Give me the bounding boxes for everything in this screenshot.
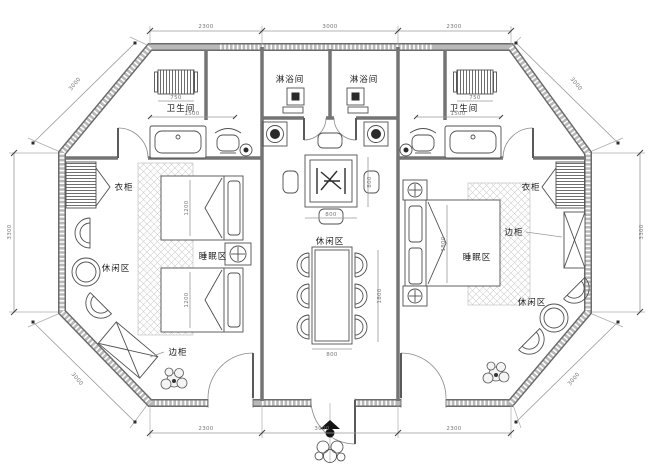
bed-left-b	[161, 268, 243, 332]
side-cabinet-right	[564, 212, 585, 268]
bathroom-left-door-arc	[118, 128, 148, 158]
dim-bed-left-a: 1200	[184, 200, 190, 215]
nightstand-left	[225, 243, 251, 265]
dim-diag-top-right: 3000	[569, 77, 583, 93]
cabinet-left-label: 边柜	[168, 347, 187, 358]
dim-towel-left: 750	[170, 95, 182, 101]
leisure-left-label: 休闲区	[102, 263, 131, 274]
center-lounge: 休闲区	[283, 133, 379, 444]
wardrobe-right-label: 衣柜	[521, 182, 540, 193]
dim-bottom-left: 2300	[198, 426, 213, 432]
nightstand-right-top	[403, 180, 427, 200]
dim-bottom-right: 2300	[446, 426, 461, 432]
desk-chair-right	[410, 129, 436, 154]
stool-west	[283, 171, 298, 193]
leisure-center-label: 休闲区	[316, 236, 345, 247]
wardrobe-right	[542, 162, 585, 208]
dimensions: 2300 3000 2300 2300 3000 2300 3300 3300 …	[7, 24, 645, 438]
bed-left-a	[161, 176, 243, 240]
floor-plan-canvas: 卫生间 卫生间 淋浴间 淋浴间	[0, 0, 651, 473]
dim-top-mid: 3000	[322, 24, 337, 30]
bathroom-right: 卫生间	[400, 70, 533, 158]
dim-bath-left: 1500	[184, 111, 199, 117]
nightstand-right-bottom	[403, 286, 427, 306]
desk-chair-left	[215, 129, 241, 154]
bathtub-right	[445, 126, 501, 158]
dim-dining-w: 800	[326, 352, 338, 358]
plant-left-icon	[161, 368, 187, 389]
dim-bed-left-b: 1200	[184, 292, 190, 307]
dim-bed-right: 1800	[441, 236, 447, 251]
dim-dining-l: 1800	[377, 288, 383, 303]
dim-diag-top-left: 3000	[68, 76, 82, 92]
bathroom-right-door-arc	[503, 128, 533, 158]
plant-right-icon	[483, 362, 509, 383]
shower-rooms: 淋浴间 淋浴间	[276, 74, 379, 140]
dim-towel-right: 750	[469, 95, 481, 101]
leisure-right-label: 休闲区	[518, 297, 547, 308]
bed-right	[405, 200, 500, 286]
towel-rack-right	[457, 70, 493, 94]
dim-bath-right: 1500	[450, 111, 465, 117]
dim-square-table-w: 800	[325, 212, 337, 218]
stool-top	[318, 133, 342, 148]
dining-table	[312, 247, 352, 344]
cabinet-right-label: 边柜	[504, 227, 523, 238]
room-right-door-arc	[401, 353, 446, 398]
dim-bottom-mid: 3000	[314, 426, 329, 432]
bedroom-left: 衣柜 休闲区 睡眠区 边柜	[66, 162, 253, 398]
shower-right-label: 淋浴间	[350, 74, 379, 85]
dim-top-left: 2300	[198, 24, 213, 30]
shower-bench-right	[348, 107, 368, 113]
shower-left-label: 淋浴间	[276, 74, 305, 85]
dim-diag-bottom-left: 3000	[70, 372, 84, 388]
wardrobe-left	[66, 162, 110, 208]
room-left-door-arc	[208, 353, 253, 398]
dim-left: 3300	[7, 224, 13, 239]
bedroom-right: 衣柜 边柜 休闲区 睡眠区	[401, 162, 595, 398]
door-openings	[208, 399, 446, 408]
dim-diag-bottom-right: 3000	[567, 371, 581, 387]
wash-basins	[263, 122, 388, 146]
sleep-left-label: 睡眠区	[199, 252, 228, 262]
bathtub-left	[150, 126, 206, 158]
shower-bench-left	[283, 107, 303, 113]
dim-right: 3300	[639, 224, 645, 239]
sleep-right-label: 睡眠区	[463, 253, 492, 263]
floor-plan-svg: 卫生间 卫生间 淋浴间 淋浴间	[0, 0, 651, 473]
dim-square-table-h: 800	[367, 176, 373, 188]
dim-top-right: 2300	[446, 24, 461, 30]
towel-rack-left	[158, 70, 194, 94]
wardrobe-left-label: 衣柜	[114, 182, 133, 193]
